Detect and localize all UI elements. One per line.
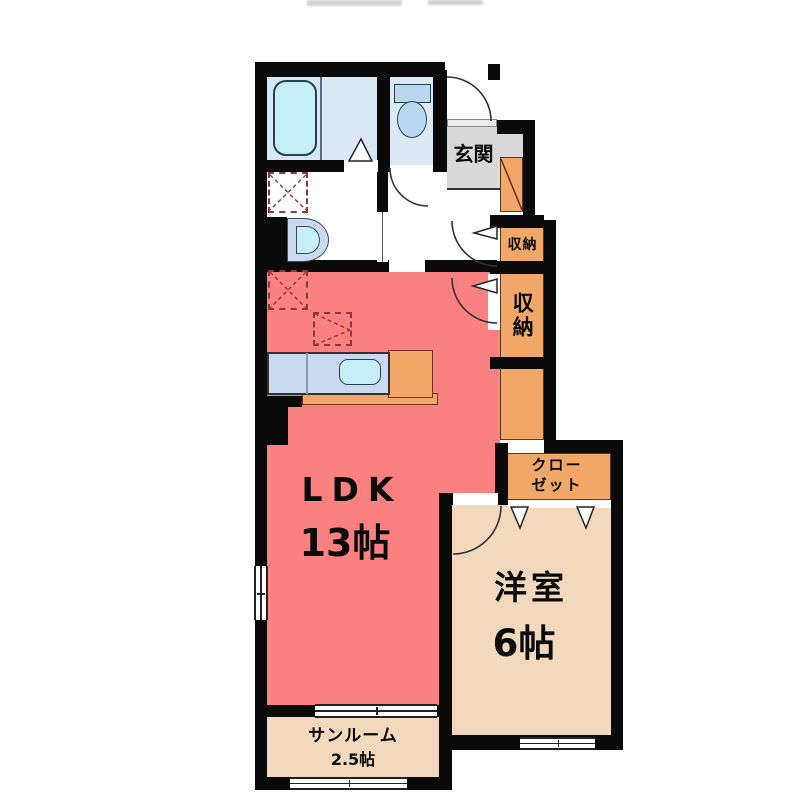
- counter-divider: [306, 353, 308, 394]
- western-room-label: 洋室: [455, 565, 607, 611]
- window-western-room: [520, 737, 595, 750]
- window-ldk-sunroom: [315, 704, 437, 718]
- bathroom-doorway: [344, 160, 378, 172]
- western-room-doorway: [453, 493, 498, 505]
- wall: [523, 122, 535, 228]
- wall: [490, 357, 556, 369]
- closet-doorway: [508, 500, 611, 508]
- scan-artifact: [428, 0, 483, 5]
- storage-large-doorway: [488, 274, 500, 330]
- sunroom-label: サンルーム: [267, 726, 439, 748]
- corridor-strip: [500, 368, 544, 440]
- western-room-size-label: 6帖: [448, 618, 600, 670]
- wall: [267, 396, 302, 407]
- wall: [611, 440, 623, 750]
- toilet-bowl: [397, 101, 427, 138]
- closet-label-line1: クロー: [505, 456, 609, 476]
- bathroom-divider: [320, 77, 322, 160]
- ldk-doorway: [389, 260, 425, 272]
- wall: [490, 215, 544, 228]
- refrigerator-space: [268, 270, 308, 310]
- washroom-sliding-door: [377, 212, 388, 262]
- shoe-cabinet: [500, 157, 523, 212]
- wall: [377, 65, 390, 172]
- sunroom-size-label: 2.5帖: [267, 750, 439, 770]
- window-sunroom: [290, 777, 407, 790]
- ldk-size-label: 13帖: [265, 518, 425, 570]
- bathtub: [273, 80, 317, 156]
- entrance-label: 玄関: [447, 140, 500, 168]
- wall: [488, 64, 500, 80]
- closet-label-line2: ゼット: [505, 476, 609, 496]
- kitchen-sink: [339, 359, 381, 385]
- front-door-arc: [447, 77, 491, 121]
- scan-artifact: [307, 0, 402, 6]
- storage-large-label: 収納: [500, 280, 544, 352]
- storage-small-label: 収納: [501, 230, 544, 260]
- floor-plan: 玄関 収納 収納 クロー ゼット LDK 13帖 洋室 6帖 サンルーム 2.5…: [0, 0, 800, 800]
- wall: [490, 261, 556, 274]
- wall: [544, 220, 556, 447]
- toilet-door-arc: [390, 168, 428, 206]
- wall: [255, 62, 445, 77]
- cupboard-space: [313, 312, 352, 346]
- stove-counter: [388, 350, 433, 398]
- wall: [433, 70, 447, 172]
- entrance-step: [447, 119, 497, 127]
- wall: [267, 217, 287, 262]
- window-ldk-left: [254, 566, 268, 620]
- ldk-label: LDK: [272, 468, 432, 512]
- washing-machine-space: [268, 172, 308, 213]
